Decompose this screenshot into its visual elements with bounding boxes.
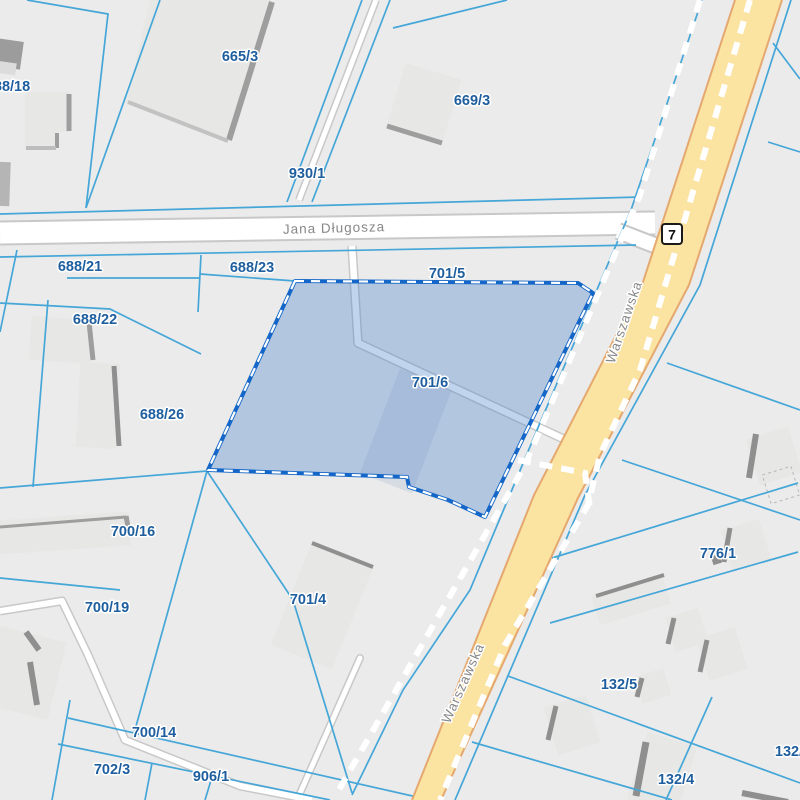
parcel-label-665-3: 665/3 [222,49,258,65]
parcel-label-701-6: 701/6 [412,375,448,391]
route-shield-7: 7 [662,224,682,244]
parcel-label-688-21: 688/21 [58,259,102,275]
parcel-label-132-: 132/ [775,744,800,760]
parcel-label-702-3: 702/3 [94,762,130,778]
parcel-label-776-1: 776/1 [700,546,736,562]
map-viewport[interactable]: 7665/3688/18669/3930/1Jana Długosza688/2… [0,0,800,800]
parcel-label-688-22: 688/22 [73,312,117,328]
parcel-label-132-4: 132/4 [658,772,694,788]
parcel-label-688-23: 688/23 [230,260,274,276]
parcel-label-132-5: 132/5 [601,677,637,693]
parcel-label-701-5: 701/5 [429,266,465,282]
parcel-label-930-1: 930/1 [289,166,325,182]
parcel-label-700-14: 700/14 [132,725,176,741]
building-left-edge [0,162,11,206]
parcel-label-700-16: 700/16 [111,524,155,540]
street-label-jana-długosza: Jana Długosza [283,219,386,237]
route-shield-number: 7 [668,227,676,243]
parcel-label-669-3: 669/3 [454,93,490,109]
parcel-label-700-19: 700/19 [85,600,129,616]
cadastral-map[interactable]: 7665/3688/18669/3930/1Jana Długosza688/2… [0,0,800,800]
parcel-label-906-1: 906/1 [193,769,229,785]
parcel-label-701-4: 701/4 [290,592,326,608]
parcel-label-688-18: 688/18 [0,79,30,95]
parcel-label-688-26: 688/26 [140,407,184,423]
